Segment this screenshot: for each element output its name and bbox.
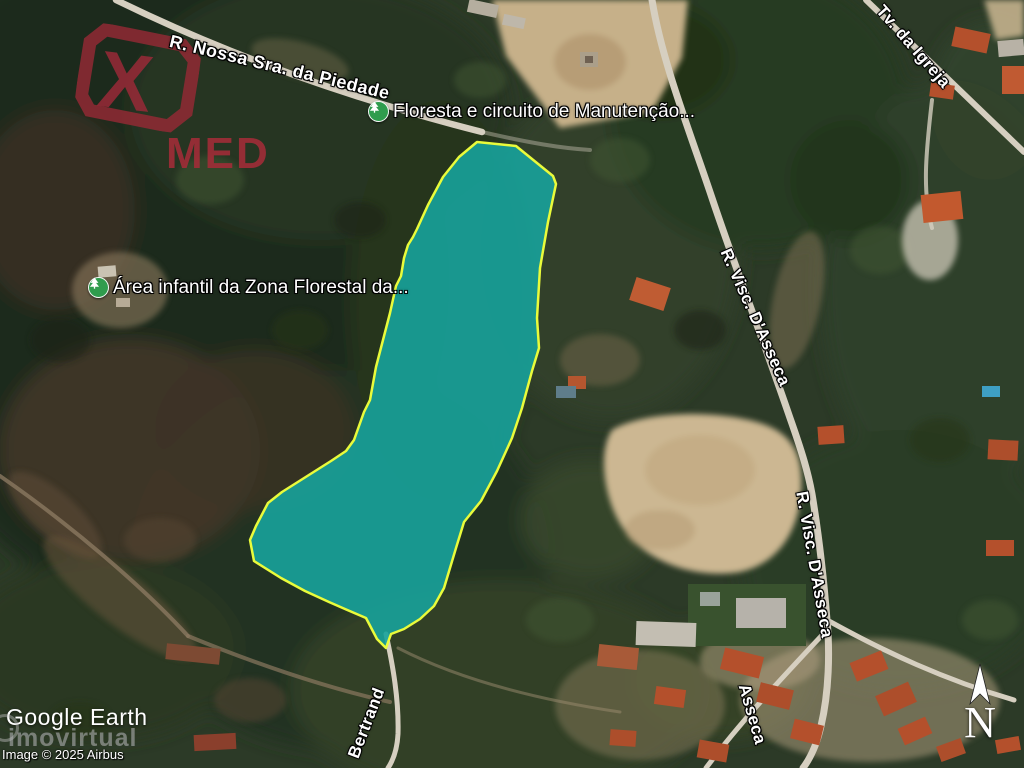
tree-icon[interactable]: [88, 277, 109, 298]
poi-area-infantil[interactable]: Área infantil da Zona Florestal da...: [88, 277, 409, 298]
north-label: N: [960, 697, 1000, 748]
tree-icon[interactable]: [368, 101, 389, 122]
agency-logo-x: X: [94, 33, 158, 131]
agency-logo-med: MED: [166, 129, 270, 179]
imagery-copyright: Image © 2025 Airbus: [2, 747, 124, 762]
poi-floresta-circuito[interactable]: Floresta e circuito de Manutenção...: [368, 101, 695, 122]
satellite-map-view: X MED R. Nossa Sra. da Piedade Tv. da Ig…: [0, 0, 1024, 768]
poi-label-text: Área infantil da Zona Florestal da...: [113, 278, 409, 297]
poi-label-text: Floresta e circuito de Manutenção...: [393, 102, 695, 121]
